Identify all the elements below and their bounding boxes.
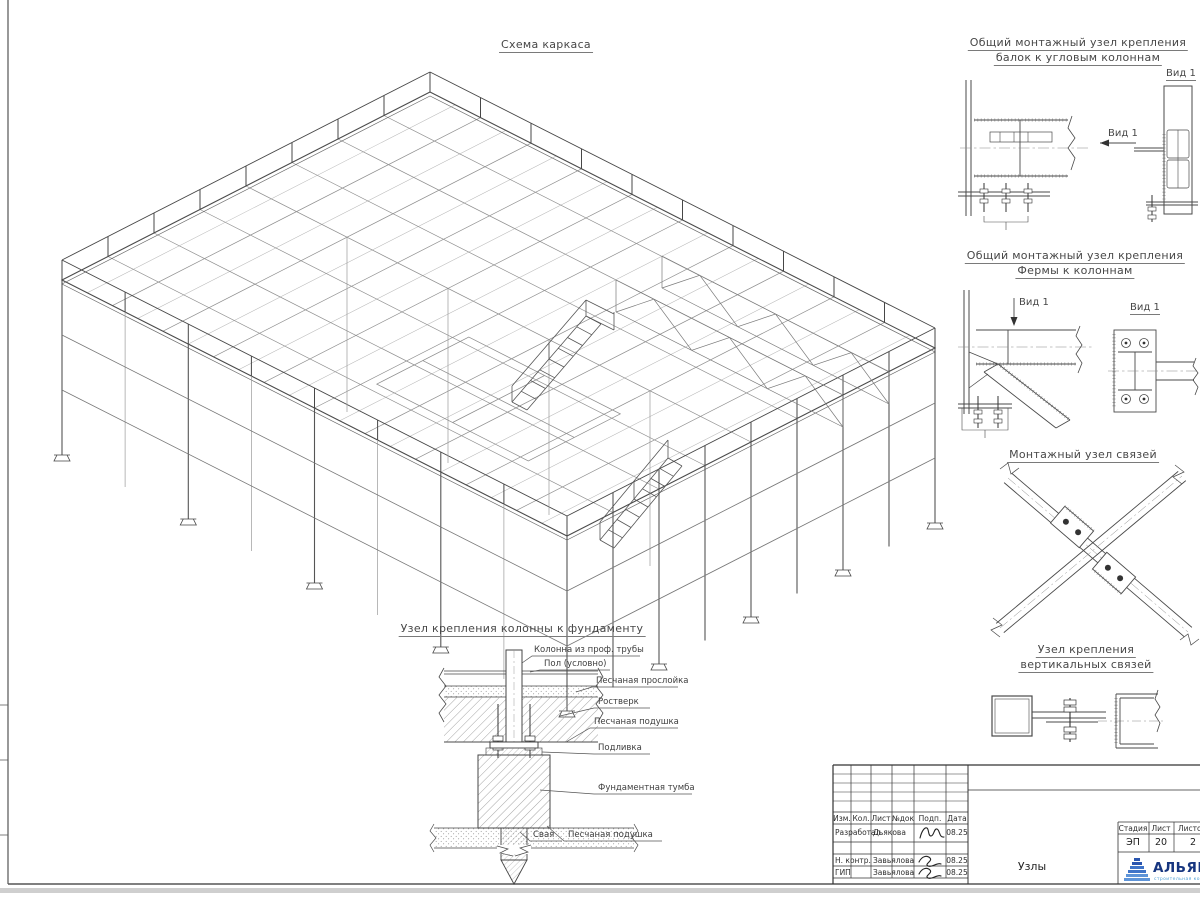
signature-icon bbox=[919, 856, 941, 866]
braces-node-detail-title: Монтажный узел связей bbox=[1007, 448, 1159, 463]
signature-icon bbox=[919, 868, 941, 878]
lower-stair bbox=[600, 440, 682, 548]
foundation-label-column: Колонна из проф. трубы bbox=[534, 645, 644, 655]
logo-text: АЛЬЯНС bbox=[1153, 860, 1200, 876]
corner-beam-detail-title-1: Общий монтажный узел крепления bbox=[968, 36, 1188, 51]
tb-stage-label: Стадия bbox=[1119, 824, 1148, 833]
corner-beam-detail-title-2: балок к угловым колоннам bbox=[994, 51, 1162, 66]
tb-date-gip: 08.25 bbox=[946, 868, 967, 877]
tb-doc-name: Узлы bbox=[1018, 860, 1046, 873]
foundation-label-sand-pad-lower: Песчаная подушка bbox=[568, 830, 653, 840]
frame-scheme-drawing bbox=[54, 72, 943, 717]
tb-col-ndok: №док bbox=[892, 814, 914, 823]
tb-sheet-value: 20 bbox=[1155, 837, 1167, 848]
tb-role-ncontrol: Н. контр. bbox=[835, 856, 871, 865]
alliance-logo-icon bbox=[1124, 858, 1150, 881]
tb-sheets-label: Листов bbox=[1178, 824, 1200, 833]
tb-col-izm: Изм. bbox=[833, 814, 851, 823]
tb-date-ncontrol: 08.25 bbox=[946, 856, 967, 865]
tb-role-gip: ГИП bbox=[835, 868, 851, 877]
truss-column-detail-title-2: Фермы к колоннам bbox=[1015, 264, 1134, 279]
tb-name-ncontrol: Завьялова bbox=[873, 856, 914, 865]
logo-subtext: строительная компания bbox=[1154, 877, 1200, 882]
truss-column-detail-drawing bbox=[958, 290, 1200, 438]
tb-col-data: Дата bbox=[947, 814, 966, 823]
tb-stage-value: ЭП bbox=[1126, 837, 1140, 848]
truss-column-view-title: Вид 1 bbox=[1130, 302, 1160, 315]
brace-node-detail-drawing bbox=[991, 463, 1199, 645]
vertical-braces-detail-title-1: Узел крепления bbox=[1036, 643, 1136, 658]
corner-beam-view-arrow-label: Вид 1 bbox=[1108, 128, 1138, 139]
tb-col-kol: Кол. bbox=[852, 814, 869, 823]
foundation-label-pedestal: Фундаментная тумба bbox=[598, 783, 695, 793]
signature-icons bbox=[919, 828, 944, 879]
tb-col-podp: Подп. bbox=[919, 814, 942, 823]
tb-date-developed: 08.25 bbox=[946, 828, 967, 837]
truss-column-detail-title-1: Общий монтажный узел крепления bbox=[965, 249, 1185, 264]
vertical-braces-detail-title-2: вертикальных связей bbox=[1018, 658, 1153, 673]
corner-beam-detail-drawing bbox=[958, 80, 1198, 230]
foundation-label-sand-pad-upper: Песчаная подушка bbox=[594, 717, 679, 727]
foundation-label-floor: Пол (условно) bbox=[544, 659, 606, 669]
tb-col-list: Лист bbox=[871, 814, 890, 823]
truss-column-view-arrow-label: Вид 1 bbox=[1019, 297, 1049, 308]
foundation-label-grout: Подливка bbox=[598, 743, 642, 753]
corner-beam-view-title: Вид 1 bbox=[1166, 68, 1196, 81]
drawing-sheet: Схема каркаса Общий монтажный узел крепл… bbox=[0, 0, 1200, 900]
main-view-title: Схема каркаса bbox=[499, 38, 593, 53]
vertical-brace-detail-drawing bbox=[992, 690, 1166, 748]
tb-sheets-value: 2 bbox=[1190, 837, 1196, 848]
foundation-label-grillage: Ростверк bbox=[598, 697, 639, 707]
foundation-label-pile: Свая bbox=[533, 830, 554, 840]
foundation-label-sand-layer: Песчаная прослойка bbox=[596, 676, 688, 686]
foundation-detail-title: Узел крепления колонны к фундаменту bbox=[399, 622, 646, 637]
signature-icon bbox=[920, 828, 944, 838]
tb-sheet-label: Лист bbox=[1151, 824, 1170, 833]
tb-name-developed: Дьякова bbox=[873, 828, 906, 837]
tb-name-gip: Завьялова bbox=[873, 868, 914, 877]
